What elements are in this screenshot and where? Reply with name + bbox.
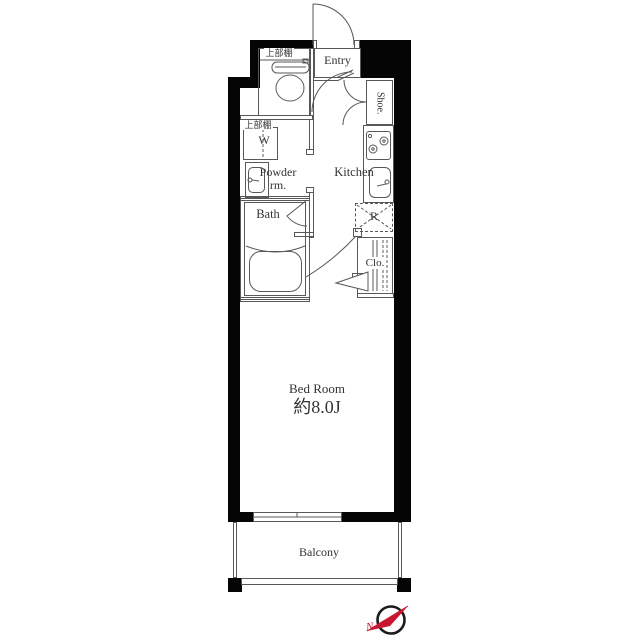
bath-label: Bath: [242, 208, 294, 221]
shoe-door-arc-bottom: [343, 102, 366, 125]
wall-right: [394, 40, 411, 522]
powder-room-label-line1: Powder: [242, 166, 314, 179]
shoe-door-arc-top: [344, 80, 366, 102]
balcony-post-right: [397, 578, 411, 592]
washer-label: W: [253, 134, 275, 147]
balcony-rail-right: [398, 522, 402, 578]
powder-room-label: Powder rm.: [242, 166, 314, 191]
bedroom-door-swing-arc: [306, 236, 356, 277]
entry-door-swing-arc: [313, 4, 354, 45]
stove-top: [366, 131, 391, 160]
entry-label: Entry: [313, 54, 362, 67]
wall-left-main: [228, 77, 240, 522]
compass-north-label: N: [361, 621, 378, 635]
bathtub-icon: [249, 251, 302, 292]
bedroom-window: [253, 512, 342, 522]
door-jamb-powder-top: [306, 149, 314, 155]
wall-bottom-left: [228, 512, 253, 522]
shelf-label-laundry: 上部棚: [238, 121, 278, 130]
wall-bottom-right: [342, 512, 411, 522]
fridge-label: R: [355, 210, 393, 223]
shelf-label-toilet: 上部棚: [260, 49, 298, 58]
compass-ring: [378, 607, 405, 634]
linework-layer: [0, 0, 640, 640]
balcony-rail-left: [233, 522, 237, 578]
kitchen-label: Kitchen: [314, 166, 394, 179]
shoe-label: Shoe.: [367, 84, 392, 122]
balcony-rail-bottom: [241, 578, 398, 585]
floor-plan: Entry Shoe. Kitchen Powder rm. Bath W R …: [0, 0, 640, 640]
bedroom-name-label: Bed Room: [240, 382, 394, 396]
powder-room-label-line2: rm.: [242, 179, 314, 192]
hall-door-swing-arc: [312, 72, 352, 112]
balcony-post-left: [228, 578, 242, 592]
bedroom-size-label: 約8.0J: [240, 398, 394, 417]
closet-label: Clo.: [359, 258, 391, 270]
balcony-label: Balcony: [240, 546, 398, 559]
